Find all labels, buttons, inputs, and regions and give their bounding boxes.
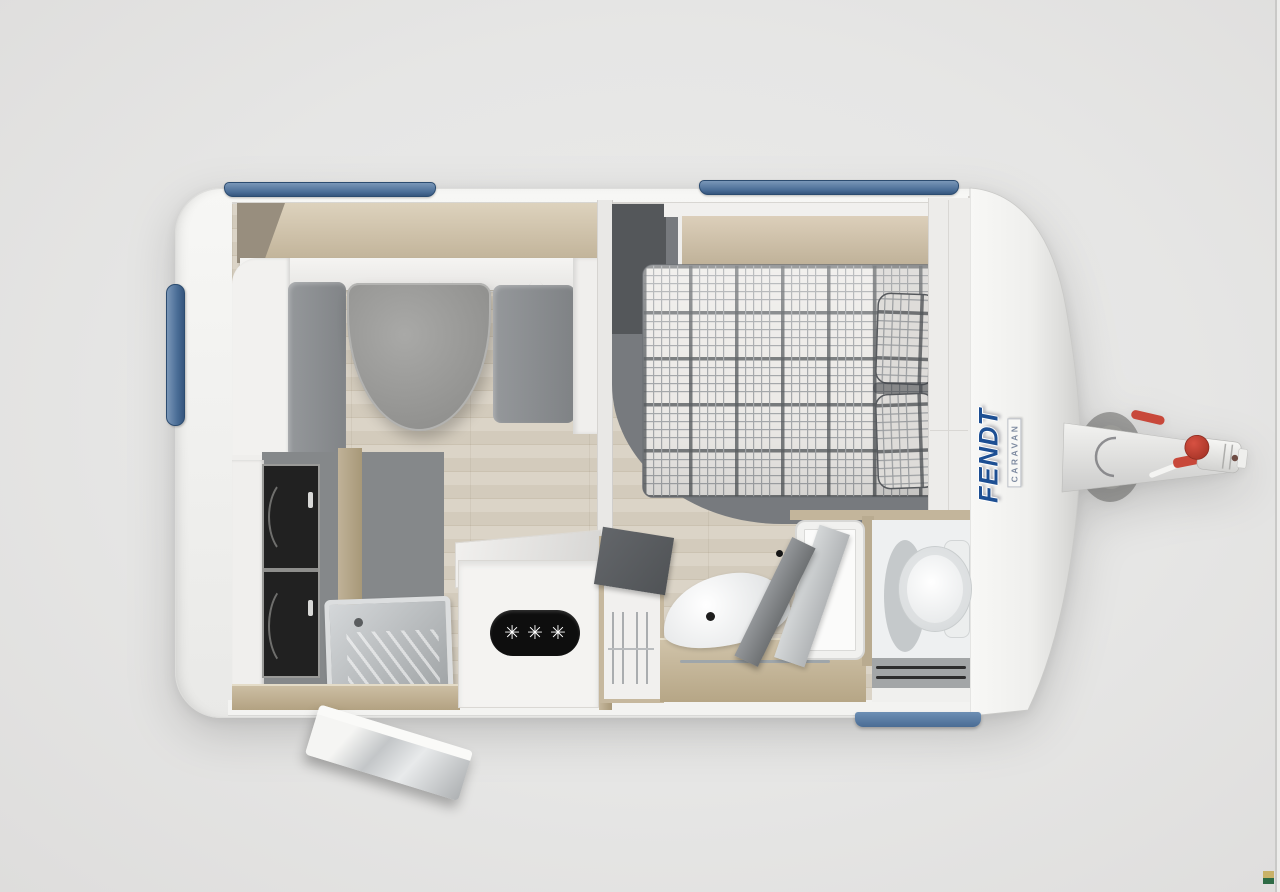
toilet [898,546,972,632]
entry-threshold [872,658,970,692]
kitchen-tall-cabinet [232,460,264,702]
dinette-overhead-shelf [237,203,611,261]
roof-window-left [224,182,436,197]
oven-handle [308,492,313,508]
roof-window-right [699,180,959,195]
oven-door-arc [268,478,312,556]
washbasin-drain [706,612,715,621]
bed-overhead-shelf [678,216,930,268]
watermark-top-half [1263,871,1274,878]
wardrobe-open-lid [594,527,674,596]
dinette-bench-left-shell [232,258,290,462]
appliance-divider [264,568,318,572]
hanger-rail [608,648,654,650]
threshold-rail [876,676,966,679]
threshold-rail [876,666,966,669]
brand-name: FENDT [974,401,1005,511]
bed-with-plaid-bedding [640,262,940,500]
dinette-bench-left-cushion [288,282,346,458]
bathroom-wall-top [790,510,970,520]
sink-drain [354,618,363,627]
dinette-bench-right-cushion [493,285,575,423]
watermark-badge [1263,871,1274,884]
jockey-wheel-handle [1130,409,1165,425]
bed-wall-trim [664,203,960,217]
stove-burner-panel: ✳✳✳ [490,610,580,656]
threshold-trim [872,688,970,702]
side-window-left [166,284,185,426]
fridge-door-arc [268,584,312,668]
fridge-handle [308,600,313,616]
watermark-bottom-half [1263,878,1274,884]
shower-door-hinge [776,550,783,557]
entry-step [855,712,981,727]
kitchen-counter-front [232,684,460,710]
caravan-floorplan-image: ✳✳✳ FENDT CARAVAN [0,0,1280,892]
brand-logo: FENDT CARAVAN [952,392,1032,520]
wardrobe-door-seam [948,200,949,530]
burner-symbols: ✳✳✳ [497,624,573,643]
brand-subtitle: CARAVAN [1007,419,1021,488]
